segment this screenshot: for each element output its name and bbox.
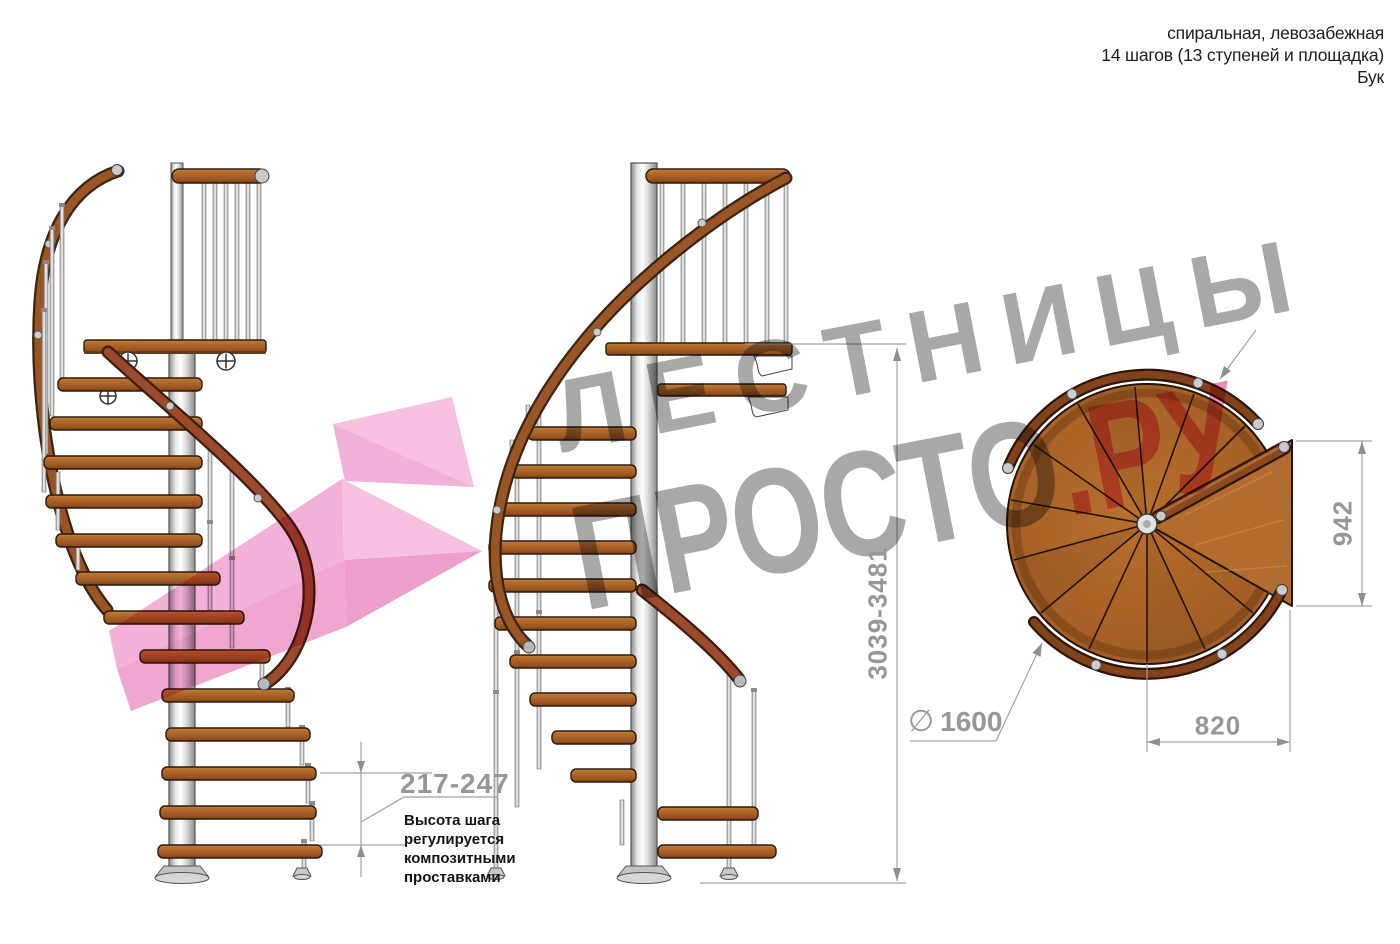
diameter-icon: ∅ (908, 704, 934, 739)
diameter-dimension: ∅ 1600 (908, 704, 1002, 739)
total-height-dimension: 3039-3481 (863, 546, 894, 679)
rail-cap (112, 165, 123, 176)
platform-width-dimension: 820 (1195, 711, 1241, 742)
watermark-ru: .РУ (1042, 348, 1253, 548)
drawing-canvas: спиральная, левозабежная 14 шагов (13 ст… (0, 0, 1400, 944)
brand-arrow-watermark (109, 397, 482, 711)
step-height-note: Высота шага регулируется композитными пр… (404, 811, 516, 887)
title-block: спиральная, левозабежная 14 шагов (13 ст… (1101, 22, 1384, 88)
rail-end-cap (734, 675, 746, 687)
material: Бук (1101, 66, 1384, 88)
top-handrail (172, 169, 266, 183)
rail-end-cap (258, 678, 270, 690)
staircase-type: спиральная, левозабежная (1101, 22, 1384, 44)
rail-end-cap (523, 641, 535, 653)
step-count: 14 шагов (13 ступеней и площадка) (1101, 44, 1384, 66)
top-balustrade (172, 169, 269, 340)
step-height-dimension: 217-247 (400, 768, 510, 800)
pole-top (171, 163, 183, 343)
pole-base (155, 873, 209, 884)
opening-depth-dimension: 942 (1328, 500, 1359, 546)
diameter-value: 1600 (940, 706, 1002, 738)
pole-base (617, 873, 671, 884)
